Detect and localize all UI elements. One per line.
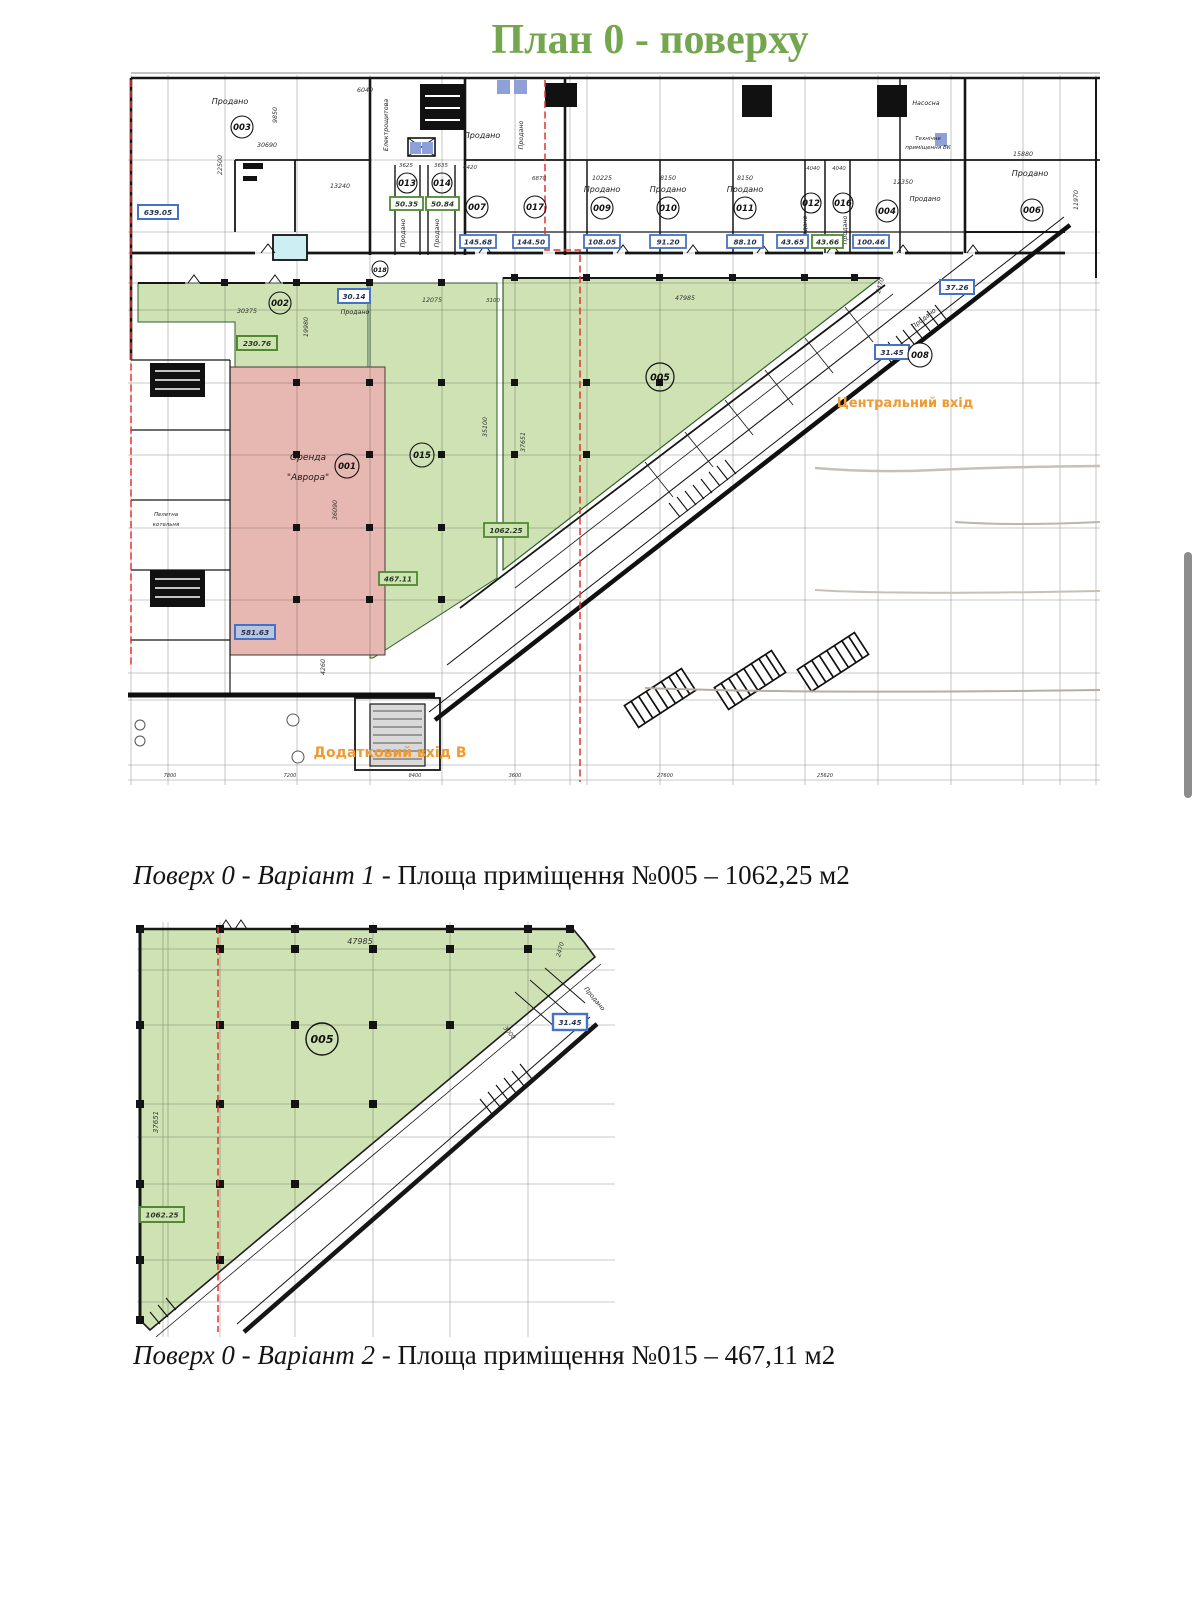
area-box-581: 581.63: [235, 625, 275, 639]
svg-text:012: 012: [802, 199, 820, 209]
svg-text:011: 011: [736, 204, 754, 214]
area-box-011: 88.10: [727, 235, 763, 248]
sold-label-006: Продано: [1012, 169, 1049, 178]
plan2-dim-47985: 47985: [347, 937, 372, 946]
area-box-467: 467.11: [379, 572, 417, 585]
dim-4040b: 4040: [832, 166, 846, 172]
svg-text:25620: 25620: [817, 773, 833, 779]
dim-47985: 47985: [675, 295, 695, 302]
svg-text:005: 005: [311, 1033, 334, 1046]
caption-variant-2: Поверх 0 - Варіант 2 - Площа приміщення …: [133, 1340, 835, 1371]
caption-2-area: - Площа приміщення №015 – 467,11 м2: [375, 1340, 835, 1370]
area-box-007: 145.68: [460, 235, 496, 248]
svg-text:005: 005: [650, 373, 670, 384]
svg-text:50.35: 50.35: [395, 200, 418, 209]
svg-text:37.26: 37.26: [945, 283, 968, 292]
area-box-012: 43.65: [777, 235, 808, 248]
area-box-3014: 30.14: [338, 289, 370, 303]
svg-text:31.45: 31.45: [558, 1018, 581, 1027]
svg-text:1062.25: 1062.25: [145, 1211, 178, 1220]
utility-room: [273, 235, 307, 260]
sold-label-upper: Продано: [464, 131, 501, 140]
pellet-room-label-1: Пелетна: [154, 512, 178, 518]
svg-text:144.50: 144.50: [517, 238, 545, 247]
electrical-room-label: Електрощитова: [383, 99, 390, 151]
floor-plan-variant-2: 005 47985 37651 2470 3000 Продано 1062.2…: [125, 912, 625, 1342]
svg-text:88.10: 88.10: [733, 238, 756, 247]
sold-label-013: Продано: [400, 218, 407, 247]
area-box-010: 91.20: [650, 235, 686, 248]
central-entrance-label: Центральний вхід: [837, 396, 974, 411]
sold-label-011: Продано: [727, 185, 764, 194]
plan2-area-box-diag: 31.45: [553, 1014, 587, 1030]
svg-text:108.05: 108.05: [588, 238, 616, 247]
room-number: 003: [233, 123, 251, 133]
tech-room-label-2: приміщення ВК: [905, 145, 952, 151]
dim-3625: 3625: [399, 163, 413, 169]
area-box-230: 230.76: [237, 336, 277, 350]
svg-text:009: 009: [593, 204, 611, 214]
dim-8150b: 8150: [737, 175, 753, 182]
caption-2-variant: Поверх 0 - Варіант 2: [133, 1340, 375, 1370]
svg-text:7200: 7200: [284, 773, 297, 779]
svg-text:001: 001: [338, 462, 356, 472]
room-badge-018: 018: [372, 261, 388, 277]
dim-35100: 35100: [482, 417, 489, 437]
area-box-1062: 1062.25: [484, 523, 528, 537]
caption-1-variant: Поверх 0 - Варіант 1: [133, 860, 375, 890]
dim-6040: 6040: [357, 87, 373, 94]
rent-zone-001: [230, 367, 385, 655]
dim-4260: 4260: [320, 659, 327, 675]
svg-text:013: 013: [398, 179, 416, 189]
svg-text:100.46: 100.46: [857, 238, 885, 247]
dim-3100: 3100: [486, 298, 500, 304]
sold-label-003: Продано: [212, 97, 249, 106]
svg-text:015: 015: [413, 451, 431, 461]
caption-1-area: - Площа приміщення №005 – 1062,25 м2: [375, 860, 850, 890]
svg-text:43.65: 43.65: [781, 238, 804, 247]
svg-text:31.45: 31.45: [880, 348, 903, 357]
pump-room-label: Насосна: [912, 100, 939, 107]
rent-label-2: "Аврора": [287, 473, 329, 483]
sold-label-009: Продано: [584, 185, 621, 194]
dim-8150a: 8150: [660, 175, 676, 182]
area-box-diag-1: 37.26: [940, 280, 974, 294]
dim-6870: 6870: [532, 176, 546, 182]
svg-text:581.63: 581.63: [241, 628, 269, 637]
svg-text:017: 017: [526, 203, 544, 213]
dim-15880: 15880: [1013, 151, 1033, 158]
sold-label-010: Продано: [650, 185, 687, 194]
svg-text:30.14: 30.14: [342, 292, 365, 301]
svg-text:8400: 8400: [409, 773, 422, 779]
svg-text:002: 002: [271, 299, 289, 309]
dim-9850: 9850: [272, 107, 279, 123]
svg-text:7800: 7800: [164, 773, 177, 779]
svg-text:639.05: 639.05: [144, 208, 172, 217]
plan2-dim-37651: 37651: [152, 1111, 160, 1133]
area-box-639: 639.05: [138, 205, 178, 219]
svg-text:1062.25: 1062.25: [489, 526, 522, 535]
svg-text:145.68: 145.68: [464, 238, 492, 247]
svg-text:27600: 27600: [657, 773, 673, 779]
svg-text:004: 004: [878, 207, 896, 217]
area-box-013: 50.35: [390, 197, 423, 210]
dim-22500: 22500: [217, 155, 224, 175]
dim-4420: 4420: [463, 165, 477, 171]
dim-30375: 30375: [237, 308, 257, 315]
dim-37651: 37651: [520, 432, 527, 452]
dim-19980: 19980: [303, 317, 310, 337]
svg-text:014: 014: [433, 179, 451, 189]
dim-13240: 13240: [330, 183, 350, 190]
svg-text:43.66: 43.66: [816, 238, 839, 247]
dim-4040a: 4040: [806, 166, 820, 172]
svg-text:018: 018: [373, 266, 387, 274]
area-box-016: 43.66: [812, 235, 843, 248]
svg-text:007: 007: [468, 203, 486, 213]
dim-36090: 36090: [332, 500, 339, 520]
sold-label-004: Продано: [909, 195, 940, 203]
svg-text:3600: 3600: [509, 773, 522, 779]
svg-text:230.76: 230.76: [243, 339, 271, 348]
sold-label-3014: Продано: [341, 309, 370, 316]
area-box-004: 100.46: [853, 235, 889, 248]
entrance-b-label: Додатковий вхід В: [314, 745, 467, 761]
plan2-area-box-1062: 1062.25: [140, 1207, 184, 1222]
sold-label-017v: Продано: [518, 120, 525, 149]
rent-label-1: Оренда: [290, 453, 326, 463]
caption-variant-1: Поверх 0 - Варіант 1 - Площа приміщення …: [133, 860, 850, 891]
svg-text:008: 008: [911, 351, 929, 361]
dim-10225: 10225: [592, 175, 612, 182]
dim-12350: 12350: [893, 179, 913, 186]
svg-text:016: 016: [834, 199, 852, 209]
svg-text:91.20: 91.20: [656, 238, 679, 247]
dim-12075: 12075: [422, 297, 442, 304]
area-box-017: 144.50: [513, 235, 549, 248]
area-box-009: 108.05: [584, 235, 620, 248]
page: { "page": { "title": "План 0 - поверху",…: [0, 0, 1200, 1600]
pellet-room-label-2: котельня: [153, 522, 180, 528]
room-badge-008: 008: [908, 343, 932, 367]
tech-room-label-1: Технічне: [915, 136, 941, 142]
svg-text:50.84: 50.84: [431, 200, 454, 209]
dim-11970: 11970: [1073, 190, 1080, 210]
dim-30690: 30690: [257, 142, 277, 149]
floor-plan-variant-1: 003 Продано 30690 9850 22500 6040 13240 …: [125, 70, 1105, 795]
page-title: План 0 - поверху: [0, 16, 1200, 64]
svg-text:467.11: 467.11: [384, 575, 412, 584]
area-box-diag-2: 31.45: [875, 345, 909, 359]
scrollbar-thumb[interactable]: [1184, 552, 1192, 798]
dim-3635: 3635: [434, 163, 448, 169]
area-box-014: 50.84: [426, 197, 459, 210]
sold-label-014: Продано: [434, 218, 441, 247]
svg-text:006: 006: [1023, 206, 1041, 216]
svg-text:010: 010: [659, 204, 677, 214]
